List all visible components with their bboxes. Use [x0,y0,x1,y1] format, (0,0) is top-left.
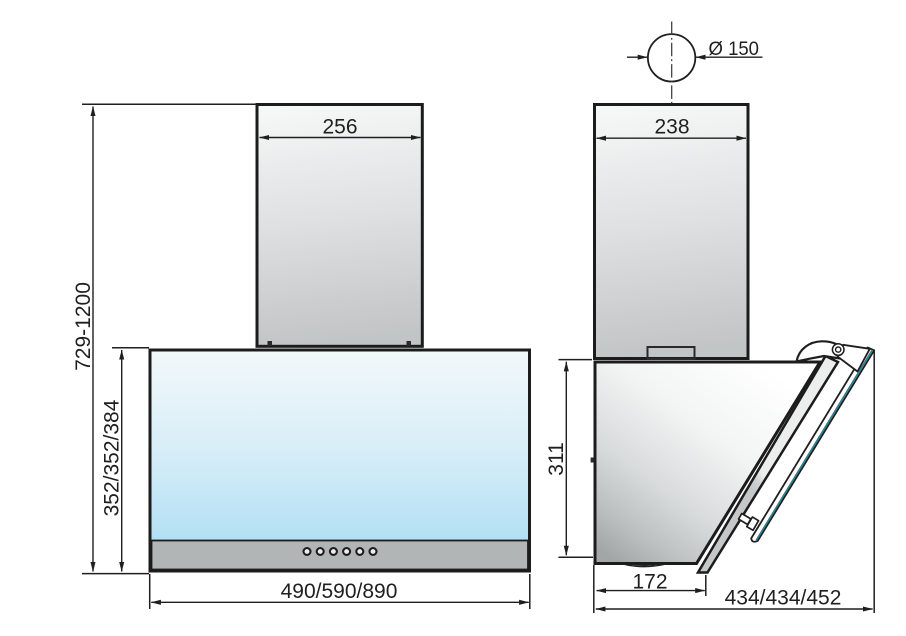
svg-text:256: 256 [322,116,357,139]
svg-text:311: 311 [545,442,568,475]
svg-text:238: 238 [654,116,689,139]
svg-text:490/590/890: 490/590/890 [281,580,398,603]
svg-text:352/352/384: 352/352/384 [101,399,124,516]
svg-text:172: 172 [632,571,667,594]
svg-text:Ø 150: Ø 150 [709,38,760,60]
svg-text:434/434/452: 434/434/452 [725,587,842,610]
svg-text:729-1200: 729-1200 [72,282,95,371]
